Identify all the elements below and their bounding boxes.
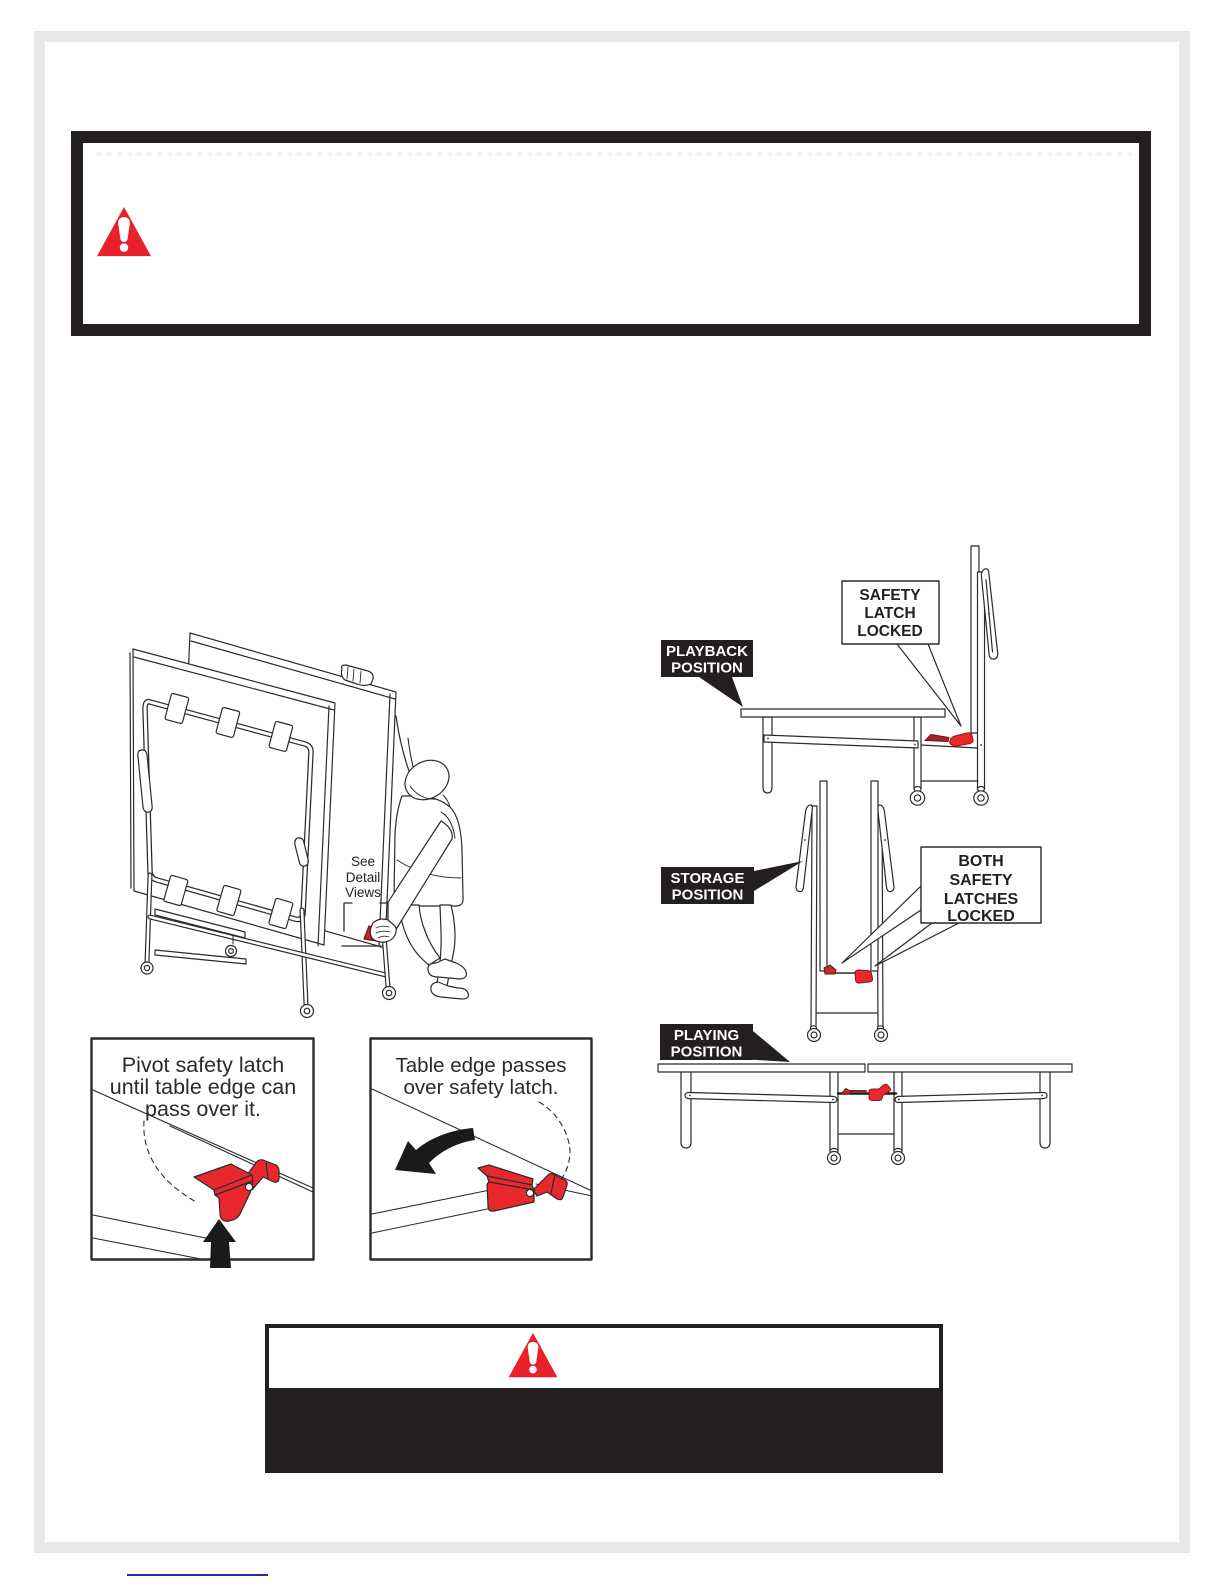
svg-text:BOTH: BOTH xyxy=(958,853,1003,870)
svg-text:See: See xyxy=(351,854,375,869)
svg-text:LOCKED: LOCKED xyxy=(947,908,1015,925)
svg-text:PLAYING: PLAYING xyxy=(674,1027,739,1044)
svg-text:Table edge passes: Table edge passes xyxy=(396,1054,567,1077)
svg-text:STORAGE: STORAGE xyxy=(671,870,745,887)
svg-text:LATCHES: LATCHES xyxy=(944,891,1019,908)
svg-text:POSITION: POSITION xyxy=(671,1044,743,1061)
svg-text:LATCH: LATCH xyxy=(864,605,915,622)
svg-text:POSITION: POSITION xyxy=(671,660,743,677)
svg-text:over safety latch.: over safety latch. xyxy=(404,1076,559,1099)
svg-text:Pivot safety latch: Pivot safety latch xyxy=(122,1053,285,1077)
svg-text:Detail: Detail xyxy=(346,870,381,885)
svg-text:LOCKED: LOCKED xyxy=(857,623,922,640)
svg-text:POSITION: POSITION xyxy=(672,887,744,904)
svg-text:SAFETY: SAFETY xyxy=(949,872,1012,889)
svg-text:PLAYBACK: PLAYBACK xyxy=(666,643,748,660)
svg-text:until table edge can: until table edge can xyxy=(110,1075,296,1099)
svg-text:Views: Views xyxy=(345,885,381,900)
svg-text:SAFETY: SAFETY xyxy=(859,587,921,604)
svg-text:pass over it.: pass over it. xyxy=(145,1097,261,1121)
